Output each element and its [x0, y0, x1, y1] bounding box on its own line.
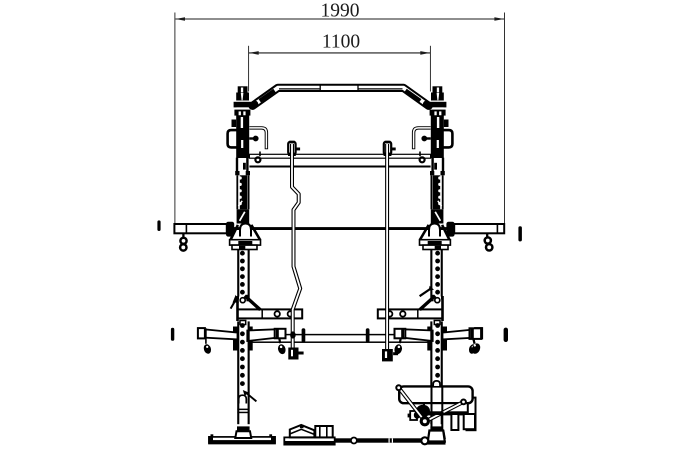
svg-text:1990: 1990: [321, 0, 360, 21]
svg-text:1100: 1100: [322, 32, 360, 53]
